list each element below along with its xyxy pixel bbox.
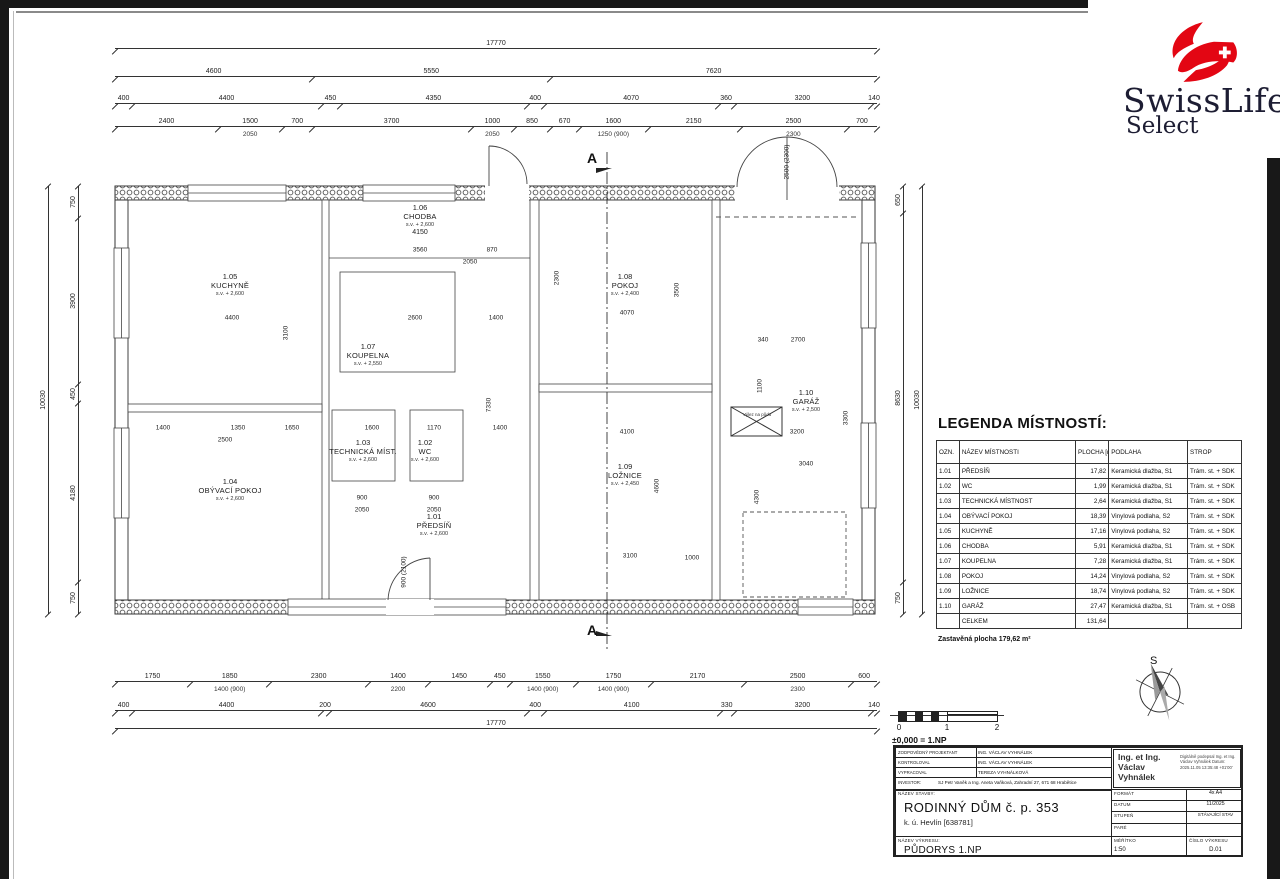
- room-name: PŘEDSÍŇ: [417, 521, 452, 530]
- dimension-segment: 7620: [550, 66, 877, 77]
- legend-cell: Trám. st. + SDK: [1188, 524, 1242, 539]
- dimension-segment: 4600: [115, 66, 312, 77]
- legend-cell: Trám. st. + SDK: [1188, 539, 1242, 554]
- room-label: 1.05KUCHYNĚs.v. + 2,600: [211, 272, 249, 298]
- legend-cell: WC: [959, 479, 1075, 494]
- room-ceiling-height: s.v. + 2,600: [411, 457, 439, 464]
- interior-dimension: 4300: [754, 490, 761, 504]
- dimension-segment: 10030: [38, 186, 49, 614]
- dimension-segment: 2200: [368, 683, 428, 693]
- legend-cell: 1.03: [937, 494, 960, 509]
- room-number: 1.05: [211, 272, 249, 281]
- drawing-number-cell: ČÍSLO VÝKRESU D.01: [1186, 836, 1243, 857]
- room-label: 1.08POKOJs.v. + 2,400: [611, 272, 639, 298]
- legend-cell: PŘEDSÍŇ: [959, 464, 1075, 479]
- dimension-segment: 1400 (900): [576, 683, 651, 693]
- legend-cell: Trám. st. + SDK: [1188, 494, 1242, 509]
- project-name-label: NÁZEV STAVBY:: [896, 790, 1111, 796]
- legend-cell: Trám. st. + SDK: [1188, 569, 1242, 584]
- legend-cell: Keramická dlažba, S1: [1109, 464, 1188, 479]
- legend-row: 1.05KUCHYNĚ17,16Vinylová podlaha, S2Trám…: [937, 524, 1242, 539]
- room-name: KOUPELNA: [347, 351, 389, 360]
- room-extra-dim: 4150: [403, 229, 436, 238]
- room-number: 1.02: [411, 438, 439, 447]
- dimension-segment: 4400: [132, 93, 321, 104]
- dimension-segment: 2300: [744, 683, 851, 693]
- legend-cell: 18,39: [1076, 509, 1109, 524]
- attic-hatch-label: Výlez na půdu: [743, 412, 772, 417]
- dimension-chain-vertical: 10030: [912, 186, 923, 614]
- legend-cell: Trám. st. + SDK: [1188, 479, 1242, 494]
- dimension-chain-vertical: 75039004504180750: [68, 186, 79, 614]
- interior-dimension: 2050: [463, 259, 477, 266]
- dimension-segment: 4100: [544, 700, 720, 711]
- legend-cell: CELKEM: [959, 614, 1075, 629]
- interior-dimension: 1400: [489, 315, 503, 322]
- dimension-segment: 5550: [312, 66, 550, 77]
- dimension-segment: 4070: [544, 93, 719, 104]
- legend-row: 1.01PŘEDSÍŇ17,82Keramická dlažba, S1Trám…: [937, 464, 1242, 479]
- legend-cell: Vinylová podlaha, S2: [1109, 584, 1188, 599]
- titleblock-row-label: INVESTOR:: [898, 780, 921, 785]
- dimension-segment: 750: [68, 582, 79, 614]
- legend-cell: Keramická dlažba, S1: [1109, 554, 1188, 569]
- legend-row: 1.10GARÁŽ27,47Keramická dlažba, S1Trám. …: [937, 599, 1242, 614]
- room-name: TECHNICKÁ MÍST.: [329, 447, 397, 456]
- room-name: KUCHYNĚ: [211, 281, 249, 290]
- cell-divider: [976, 758, 977, 767]
- dimension-chain: 2400150070037001000850670160021502500700: [115, 116, 877, 127]
- dimension-segment: 750: [893, 582, 904, 614]
- legend-cell: TECHNICKÁ MÍSTNOST: [959, 494, 1075, 509]
- dimension-segment: 700: [847, 116, 877, 127]
- room-label: 1.03TECHNICKÁ MÍST.s.v. + 2,600: [329, 438, 397, 464]
- drawing-name: PŮDORYS 1.NP: [904, 845, 1111, 856]
- interior-dimension: 7330: [486, 398, 493, 412]
- legend-table: OZN.NÁZEV MÍSTNOSTIPLOCHA [m²]PODLAHASTR…: [936, 440, 1242, 629]
- interior-dimension: 2700: [791, 337, 805, 344]
- interior-dimension: 4070: [620, 310, 634, 317]
- legend-cell: [937, 614, 960, 629]
- interior-dimension: 2600: [408, 315, 422, 322]
- dimension-chain: 1400 (900)22001400 (900)1400 (900)2300: [115, 683, 877, 693]
- legend-cell: 5,91: [1076, 539, 1109, 554]
- interior-dimension: 4100: [620, 429, 634, 436]
- cell-divider: [976, 748, 977, 757]
- legend-cell: Keramická dlažba, S1: [1109, 599, 1188, 614]
- drawing-number: D.01: [1187, 847, 1242, 853]
- dimension-segment: 4600: [329, 700, 526, 711]
- legend-footnote: Zastavěná plocha 179,62 m²: [938, 636, 1242, 643]
- legend-cell: KOUPELNA: [959, 554, 1075, 569]
- compass-icon: [1132, 657, 1189, 726]
- legend-cell: Keramická dlažba, S1: [1109, 479, 1188, 494]
- room-label: 1.10GARÁŽs.v. + 2,500: [792, 388, 820, 414]
- project-name: RODINNÝ DŮM č. p. 353: [904, 800, 1111, 815]
- room-ceiling-height: s.v. + 2,550: [347, 361, 389, 368]
- room-ceiling-height: s.v. + 2,500: [792, 407, 820, 414]
- legend-row: 1.03TECHNICKÁ MÍSTNOST2,64Keramická dlaž…: [937, 494, 1242, 509]
- legend-cell: 1.04: [937, 509, 960, 524]
- project-name-cell: NÁZEV STAVBY: RODINNÝ DŮM č. p. 353 k. ú…: [895, 789, 1112, 837]
- dimension-segment: 140: [871, 700, 877, 711]
- drawing-name-cell: NÁZEV VÝKRESU: PŮDORYS 1.NP: [895, 836, 1112, 857]
- room-ceiling-height: s.v. + 2,600: [417, 531, 452, 538]
- legend-row: CELKEM131,64: [937, 614, 1242, 629]
- dimension-segment: 750: [68, 186, 79, 218]
- legend-cell: 14,24: [1076, 569, 1109, 584]
- datum-note: ±0,000 = 1.NP: [892, 735, 947, 745]
- room-number: 1.08: [611, 272, 639, 281]
- interior-dimension: 1600: [365, 425, 379, 432]
- inner-wall-face: [128, 200, 862, 600]
- compass-north-label: S: [1150, 655, 1157, 667]
- room-label: 1.01PŘEDSÍŇs.v. + 2,600: [417, 512, 452, 538]
- legend-cell: Trám. st. + SDK: [1188, 584, 1242, 599]
- legend-cell: 1,99: [1076, 479, 1109, 494]
- interior-dimension: 4400: [225, 315, 239, 322]
- titleblock-row-value: SJ Petr Vaněk a Ing. Aneta Vaňková, Zahr…: [938, 780, 1077, 785]
- dimension-segment: 140: [871, 93, 877, 104]
- interior-dimension: 1650: [285, 425, 299, 432]
- interior-dimension: 4600: [654, 479, 661, 493]
- legend-header: NÁZEV MÍSTNOSTI: [959, 441, 1075, 464]
- interior-dimension: 3500: [674, 283, 681, 297]
- room-name: WC: [411, 447, 439, 456]
- dimension-segment: [851, 683, 877, 693]
- interior-dimension: 2050: [355, 507, 369, 514]
- signer-name: Ing. et Ing. Václav Vyhnálek: [1118, 753, 1180, 782]
- legend-header: OZN.: [937, 441, 960, 464]
- legend-cell: CHODBA: [959, 539, 1075, 554]
- drawing-sheet: { "logo": {"brand": "SwissLife", "sub": …: [0, 0, 1280, 879]
- exterior-walls: [115, 200, 875, 600]
- dimension-chain-vertical: 6508630750: [893, 186, 904, 614]
- section-mark-a-bottom: A: [587, 622, 597, 638]
- scale-value: 1:50: [1112, 847, 1186, 853]
- dimension-chain: 4004400450435040040703603200140: [115, 93, 877, 104]
- room-name: CHODBA: [403, 212, 436, 221]
- dimension-segment: 2050: [218, 128, 282, 138]
- dimension-segment: [847, 128, 877, 138]
- room-label: 1.02WCs.v. + 2,600: [411, 438, 439, 464]
- interior-dimension: 2500: [218, 437, 232, 444]
- titleblock-row-value: TEREZA VYHNÁLKOVÁ: [978, 770, 1028, 775]
- legend-header: PODLAHA: [1109, 441, 1188, 464]
- titleblock-row-label: KONTROLOVAL: [898, 760, 930, 765]
- dimension-segment: 4350: [340, 93, 527, 104]
- section-mark-a-top: A: [587, 150, 597, 166]
- dimension-segment: [514, 128, 550, 138]
- dimension-segment: 8630: [893, 214, 904, 582]
- cadastre: k. ú. Hevlín [638781]: [904, 818, 1111, 827]
- dimension-chain: 205020501250 (900)2300: [115, 128, 877, 138]
- dimension-segment: 650: [893, 186, 904, 214]
- legend-cell: Keramická dlažba, S1: [1109, 539, 1188, 554]
- room-label: 1.04OBÝVACÍ POKOJs.v. + 2,600: [199, 477, 262, 503]
- titleblock-row-label: VYPRACOVAL: [898, 770, 927, 775]
- room-ceiling-height: s.v. + 2,400: [611, 291, 639, 298]
- legend-cell: [1109, 614, 1188, 629]
- interior-dimension: 1100: [757, 379, 764, 393]
- dimension-segment: 2300: [740, 128, 847, 138]
- pare-value-cell: [1186, 823, 1243, 837]
- dimension-segment: 4400: [132, 700, 321, 711]
- cell-divider: [976, 768, 977, 777]
- interior-dimension: 3100: [623, 553, 637, 560]
- interior-dimension: 340: [758, 337, 769, 344]
- legend-cell: 1.09: [937, 584, 960, 599]
- legend-cell: 2,64: [1076, 494, 1109, 509]
- legend-cell: [1188, 614, 1242, 629]
- room-number: 1.01: [417, 512, 452, 521]
- room-ceiling-height: s.v. + 2,600: [211, 291, 249, 298]
- dimension-chain: 17770: [115, 38, 877, 49]
- room-name: GARÁŽ: [792, 397, 820, 406]
- dimension-segment: 600: [851, 671, 877, 682]
- interior-dimension: 1170: [427, 425, 441, 432]
- room-ceiling-height: s.v. + 2,600: [199, 496, 262, 503]
- legend-cell: 17,82: [1076, 464, 1109, 479]
- dimension-segment: 3900: [68, 218, 79, 384]
- dimension-chain-vertical: 10030: [38, 186, 49, 614]
- interior-dimension: 3100: [283, 326, 290, 340]
- titleblock-row-value: ING. VÁCLAV VYHNÁLEK: [978, 750, 1032, 755]
- dimension-segment: 4180: [68, 404, 79, 582]
- scale-tick-0: 0: [897, 723, 901, 732]
- room-legend: LEGENDA MÍSTNOSTÍ: OZN.NÁZEV MÍSTNOSTIPL…: [936, 415, 1242, 643]
- dimension-segment: 10030: [912, 186, 923, 614]
- interior-dimension: 1000: [685, 555, 699, 562]
- signature-note: Digitálně podepsal Ing. et Ing. Václav V…: [1180, 754, 1238, 770]
- legend-row: 1.02WC1,99Keramická dlažba, S1Trám. st. …: [937, 479, 1242, 494]
- scale-tick-1: 1: [945, 723, 949, 732]
- room-name: POKOJ: [611, 281, 639, 290]
- interior-dimension: 2300: [554, 271, 561, 285]
- room-number: 1.06: [403, 203, 436, 212]
- legend-cell: 27,47: [1076, 599, 1109, 614]
- legend-cell: 1.02: [937, 479, 960, 494]
- legend-cell: Trám. st. + OSB: [1188, 599, 1242, 614]
- dimension-segment: 17770: [115, 718, 877, 729]
- legend-cell: OBÝVACÍ POKOJ: [959, 509, 1075, 524]
- legend-row: 1.07KOUPELNA7,28Keramická dlažba, S1Trám…: [937, 554, 1242, 569]
- interior-dimension: 3300: [843, 411, 850, 425]
- interior-dimension: 3040: [799, 461, 813, 468]
- interior-dimension: 3560: [413, 247, 427, 254]
- interior-dimension: 1400: [493, 425, 507, 432]
- dimension-segment: 17770: [115, 38, 877, 49]
- room-label: 1.09LOŽNICEs.v. + 2,450: [608, 462, 642, 488]
- dimension-segment: 3700: [312, 116, 471, 127]
- interior-dimension: 2500 (2300): [784, 144, 791, 179]
- interior-dimension: 870: [487, 247, 498, 254]
- scale-cell: MĚŘÍTKO 1:50: [1111, 836, 1187, 857]
- legend-cell: Keramická dlažba, S1: [1109, 494, 1188, 509]
- legend-title: LEGENDA MÍSTNOSTÍ:: [938, 415, 1242, 432]
- room-number: 1.04: [199, 477, 262, 486]
- legend-cell: KUCHYNĚ: [959, 524, 1075, 539]
- legend-row: 1.08POKOJ14,24Vinylová podlaha, S2Trám. …: [937, 569, 1242, 584]
- legend-cell: Vinylová podlaha, S2: [1109, 569, 1188, 584]
- dimension-chain: 460055507620: [115, 66, 877, 77]
- interior-partitions: [128, 200, 720, 600]
- interior-dimension: 1400: [156, 425, 170, 432]
- legend-cell: Trám. st. + SDK: [1188, 509, 1242, 524]
- legend-row: 1.06CHODBA5,91Keramická dlažba, S1Trám. …: [937, 539, 1242, 554]
- dimension-chain: 1750185023001400145045015501750217025006…: [115, 671, 877, 682]
- legend-cell: 7,28: [1076, 554, 1109, 569]
- dimension-segment: 450: [68, 384, 79, 403]
- legend-cell: Vinylová podlaha, S2: [1109, 509, 1188, 524]
- legend-cell: 17,16: [1076, 524, 1109, 539]
- legend-cell: 1.07: [937, 554, 960, 569]
- legend-cell: Trám. st. + SDK: [1188, 464, 1242, 479]
- legend-row: 1.04OBÝVACÍ POKOJ18,39Vinylová podlaha, …: [937, 509, 1242, 524]
- room-name: OBÝVACÍ POKOJ: [199, 486, 262, 495]
- room-ceiling-height: s.v. + 2,600: [403, 222, 436, 229]
- titleblock-row-value: ING. VÁCLAV VYHNÁLEK: [978, 760, 1032, 765]
- legend-cell: 1.05: [937, 524, 960, 539]
- pare-label-cell: PARÉ: [1111, 823, 1187, 837]
- room-name: LOŽNICE: [608, 471, 642, 480]
- dimension-segment: [428, 683, 490, 693]
- room-label: 1.06CHODBAs.v. + 2,6004150: [403, 203, 436, 237]
- room-ceiling-height: s.v. + 2,450: [608, 481, 642, 488]
- dimension-segment: 2050: [471, 128, 514, 138]
- room-label: 1.07KOUPELNAs.v. + 2,550: [347, 342, 389, 368]
- dimension-segment: 1400 (900): [190, 683, 269, 693]
- interior-dimension: 900: [429, 495, 440, 502]
- dimension-segment: 1250 (900): [579, 128, 648, 138]
- legend-cell: Vinylová podlaha, S2: [1109, 524, 1188, 539]
- legend-cell: 1.01: [937, 464, 960, 479]
- legend-row: 1.09LOŽNICE18,74Vinylová podlaha, S2Trám…: [937, 584, 1242, 599]
- room-ceiling-height: s.v. + 2,600: [329, 457, 397, 464]
- legend-cell: 1.08: [937, 569, 960, 584]
- title-block: ZODPOVĚDNÝ PROJEKTANTING. VÁCLAV VYHNÁLE…: [893, 745, 1243, 857]
- dimension-chain: 4004400200460040041003303200140: [115, 700, 877, 711]
- scale-tick-2: 2: [995, 723, 999, 732]
- interior-dimension: 3200: [790, 429, 804, 436]
- interior-dimension: 1350: [231, 425, 245, 432]
- section-line: [596, 152, 612, 652]
- interior-dimension: 900: [357, 495, 368, 502]
- doors: [386, 137, 839, 615]
- room-number: 1.09: [608, 462, 642, 471]
- signature-box: Ing. et Ing. Václav Vyhnálek Digitálně p…: [1111, 747, 1243, 790]
- room-number: 1.03: [329, 438, 397, 447]
- legend-cell: GARÁŽ: [959, 599, 1075, 614]
- legend-header: PLOCHA [m²]: [1076, 441, 1109, 464]
- legend-cell: 1.10: [937, 599, 960, 614]
- room-number: 1.07: [347, 342, 389, 351]
- titleblock-row-label: ZODPOVĚDNÝ PROJEKTANT: [898, 750, 957, 755]
- dimension-chain: 17770: [115, 718, 877, 729]
- dimension-segment: [282, 128, 312, 138]
- legend-cell: Trám. st. + SDK: [1188, 554, 1242, 569]
- dimension-segment: [312, 128, 471, 138]
- legend-cell: LOŽNICE: [959, 584, 1075, 599]
- legend-cell: 1.06: [937, 539, 960, 554]
- legend-cell: POKOJ: [959, 569, 1075, 584]
- room-number: 1.10: [792, 388, 820, 397]
- interior-dimension: 900 (2100): [401, 556, 408, 587]
- drawing-name-label: NÁZEV VÝKRESU:: [896, 837, 1111, 843]
- legend-cell: 18,74: [1076, 584, 1109, 599]
- legend-cell: 131,64: [1076, 614, 1109, 629]
- legend-header: STROP: [1188, 441, 1242, 464]
